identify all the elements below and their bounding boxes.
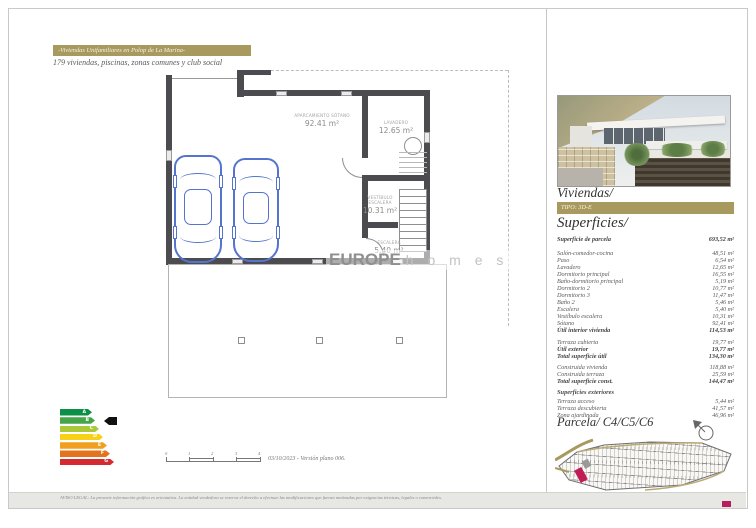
table-row: Vestíbulo escalera10,31 m² xyxy=(557,313,734,320)
wall-stub-cap xyxy=(237,70,271,75)
parcela-site-map xyxy=(555,438,737,496)
site-map-overlay xyxy=(555,438,737,496)
legal-disclaimer: AVISO LEGAL: La presente información grá… xyxy=(60,495,460,500)
car-windshield xyxy=(180,173,216,186)
car-wheel xyxy=(232,226,236,239)
car-wheel xyxy=(219,226,223,239)
corner-highlight-mark xyxy=(722,501,731,507)
car-wheel xyxy=(173,226,177,239)
pillar xyxy=(424,132,430,143)
villa-render-photo xyxy=(557,95,731,187)
car-symbol xyxy=(233,158,279,262)
table-row: Total superficie útil134,30 m² xyxy=(557,353,734,360)
stair-treads-upper xyxy=(399,152,427,174)
plant xyxy=(699,141,727,157)
street xyxy=(558,168,603,186)
room-label-vestibulo: VESTÍBULO ESCALERA 10.31 m² xyxy=(362,195,398,215)
energy-bar-f: F xyxy=(60,450,110,457)
car-wheel xyxy=(276,177,280,190)
wall-left xyxy=(166,75,172,265)
car-roof xyxy=(243,192,269,224)
superficies-table: Superficie de parcela693,52 m² Salón-com… xyxy=(557,236,734,419)
project-banner: -Viviendas Unifamiliares en Polop de La … xyxy=(53,45,251,56)
plan-sheet: -Viviendas Unifamiliares en Polop de La … xyxy=(0,0,756,528)
table-row: Útil exterior19,77 m² xyxy=(557,346,734,353)
pillar xyxy=(166,150,172,161)
energy-rating-chart: A B C D E F G xyxy=(60,409,180,467)
plan-version-text: 03/10/2023 - Versión plano 006. xyxy=(268,456,346,462)
plant xyxy=(658,143,696,157)
panel-divider xyxy=(546,9,547,492)
table-row: Construida vivienda118,88 m² xyxy=(557,364,734,371)
table-row: Escalera5,40 m² xyxy=(557,306,734,313)
car-rear-window xyxy=(180,230,216,243)
project-subtitle: 179 viviendas, piscinas, zonas comunes y… xyxy=(53,58,222,67)
room-label-lavadero: LAVADERO 12.65 m² xyxy=(370,120,422,135)
superficies-title: Superficies/ xyxy=(557,215,628,232)
wall-interior-upper xyxy=(362,96,368,158)
car-wheel xyxy=(276,226,280,239)
terrace-pillar xyxy=(316,337,323,344)
table-row: Terraza acceso5,44 m² xyxy=(557,398,734,405)
panel-title: Viviendas/ xyxy=(557,185,613,201)
parcela-title: Parcela/ C4/C5/C6 xyxy=(557,415,653,430)
wall-stair-landing xyxy=(368,222,398,228)
table-row: Dormitorio 210,77 m² xyxy=(557,285,734,292)
garage-entry-line xyxy=(172,78,237,79)
table-row: Sótano92,41 m² xyxy=(557,320,734,327)
pillar xyxy=(341,91,352,96)
terrace-outline xyxy=(168,264,447,398)
car-symbol xyxy=(174,155,222,263)
car-roof xyxy=(184,189,212,225)
table-row: Salón-comedor-cocina48,51 m² xyxy=(557,250,734,257)
garage-door xyxy=(635,158,730,186)
scale-bar: 0 1 2 3 4 xyxy=(166,451,264,465)
energy-bar-d: D xyxy=(60,434,103,441)
table-row: Baño-dormitorio principal5,19 m² xyxy=(557,278,734,285)
terrace-pillar xyxy=(238,337,245,344)
table-row: Lavadero12,65 m² xyxy=(557,264,734,271)
energy-bar-a: A xyxy=(60,409,92,416)
car-windshield xyxy=(239,176,273,189)
table-row: Paso6,54 m² xyxy=(557,257,734,264)
table-row: Útil interior vivienda114,53 m² xyxy=(557,327,734,334)
room-label-garage: APARCAMIENTO SÓTANO 92.41 m² xyxy=(283,113,361,128)
car-wheel xyxy=(173,175,177,188)
table-row: Terraza descubierta41,57 m² xyxy=(557,405,734,412)
watermark-logo: EUROPE h o m e s xyxy=(326,250,511,270)
terrace-pillar xyxy=(396,337,403,344)
table-row: Construida terraza25,59 m² xyxy=(557,371,734,378)
energy-bar-e: E xyxy=(60,442,107,449)
plant xyxy=(623,143,651,166)
table-row: Superficie de parcela693,52 m² xyxy=(557,236,734,243)
energy-bar-g: G xyxy=(60,459,114,466)
table-row: Dormitorio principal16,55 m² xyxy=(557,271,734,278)
wall-interior-horizontal xyxy=(362,175,430,181)
plan-dashed-overhang-line xyxy=(246,70,508,71)
tipo-badge: TIPO: 3D-E xyxy=(557,202,734,214)
car-rear-window xyxy=(239,229,273,242)
wall-top xyxy=(244,90,430,96)
car-wheel xyxy=(219,175,223,188)
table-row: Total superficie const.144,47 m² xyxy=(557,378,734,385)
energy-bar-b: B xyxy=(60,417,95,424)
table-row: Dormitorio 311,47 m² xyxy=(557,292,734,299)
exteriores-heading: Superficies exteriores xyxy=(557,389,734,396)
table-row: Baño 25,46 m² xyxy=(557,299,734,306)
plan-dashed-boundary-line xyxy=(508,70,509,326)
pillar xyxy=(276,91,287,96)
car-wheel xyxy=(232,177,236,190)
energy-bar-c: C xyxy=(60,426,99,433)
table-row: Terraza cubierta19,77 m² xyxy=(557,339,734,346)
